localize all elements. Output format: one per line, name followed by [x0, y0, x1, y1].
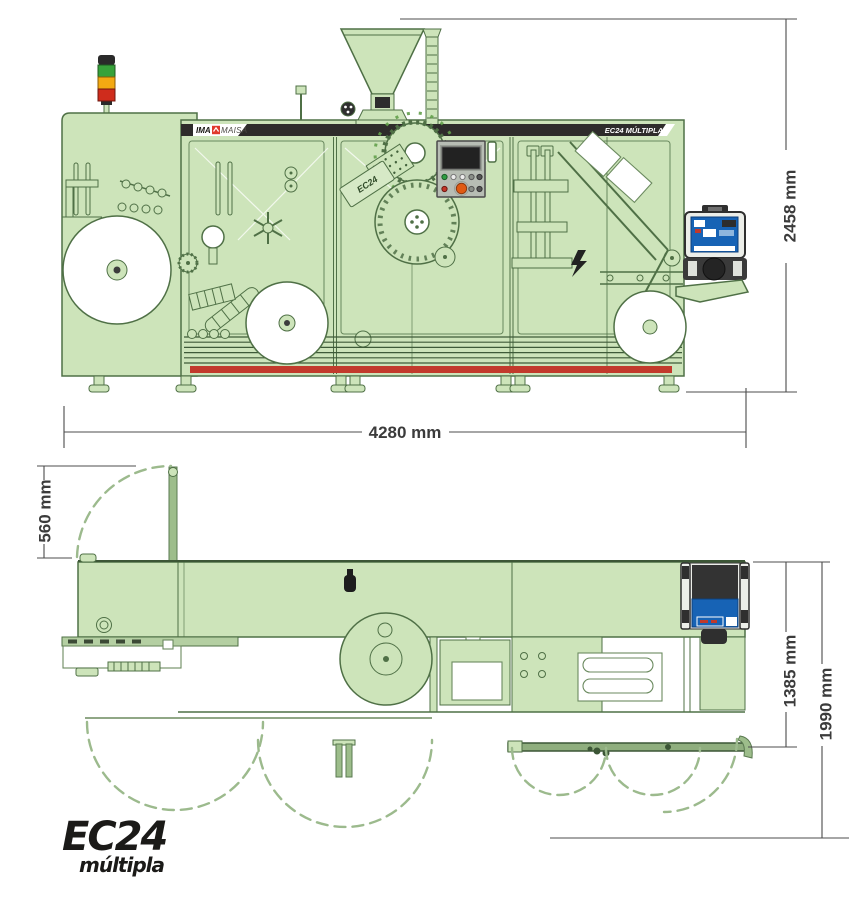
door-swing-arcs: [87, 722, 737, 827]
width-dimension-label: 4280 mm: [369, 423, 442, 442]
outfeed-wheel: [614, 291, 686, 363]
ima-maisa-logo: IMA MAISA: [193, 124, 247, 136]
valve-knob-icon: [341, 102, 355, 116]
safety-strip: [190, 366, 672, 373]
rotary-table: [340, 613, 432, 705]
splice-pole: [296, 86, 306, 120]
model-banner: EC24 MÚLTIPLA: [605, 126, 663, 135]
front-view: IMA MAISA EC24 MÚLTIPLA: [62, 19, 799, 448]
machine-feet: [89, 376, 679, 392]
stack-light-icon: [98, 55, 115, 114]
blister-pocket: [583, 679, 653, 693]
technical-drawing: IMA MAISA EC24 MÚLTIPLA: [0, 0, 851, 916]
outfeed-shelf: [676, 280, 748, 302]
door-swing-arc-rear: [77, 466, 171, 557]
dosing-column: [423, 29, 441, 135]
height-dimension-label: 2458 mm: [780, 170, 799, 243]
depth-dimension-outer-label: 1990 mm: [816, 668, 835, 741]
brand-maisa-text: MAISA: [221, 126, 247, 135]
hmi-panel-front: [676, 205, 748, 302]
film-reel-large: [63, 216, 171, 324]
plan-view: 560 mm 1385 mm 1990 mm: [35, 466, 849, 838]
control-panel: [437, 141, 485, 197]
brand-ima-text: IMA: [196, 126, 211, 135]
blister-pocket: [583, 658, 653, 672]
product-logo: EC24 múltipla: [62, 814, 167, 877]
rear-dimension-label: 560 mm: [35, 479, 54, 542]
film-reel-small: [246, 282, 328, 364]
index-roller: [355, 331, 371, 347]
width-dimension: 4280 mm: [64, 388, 746, 448]
rear-guard-open: [169, 467, 178, 562]
document-slot: [488, 142, 496, 162]
control-screen: [442, 147, 480, 169]
product-logo-series: múltipla: [79, 853, 165, 877]
front-door-rail: [333, 736, 752, 777]
depth-dimension-inner-label: 1385 mm: [780, 635, 799, 708]
